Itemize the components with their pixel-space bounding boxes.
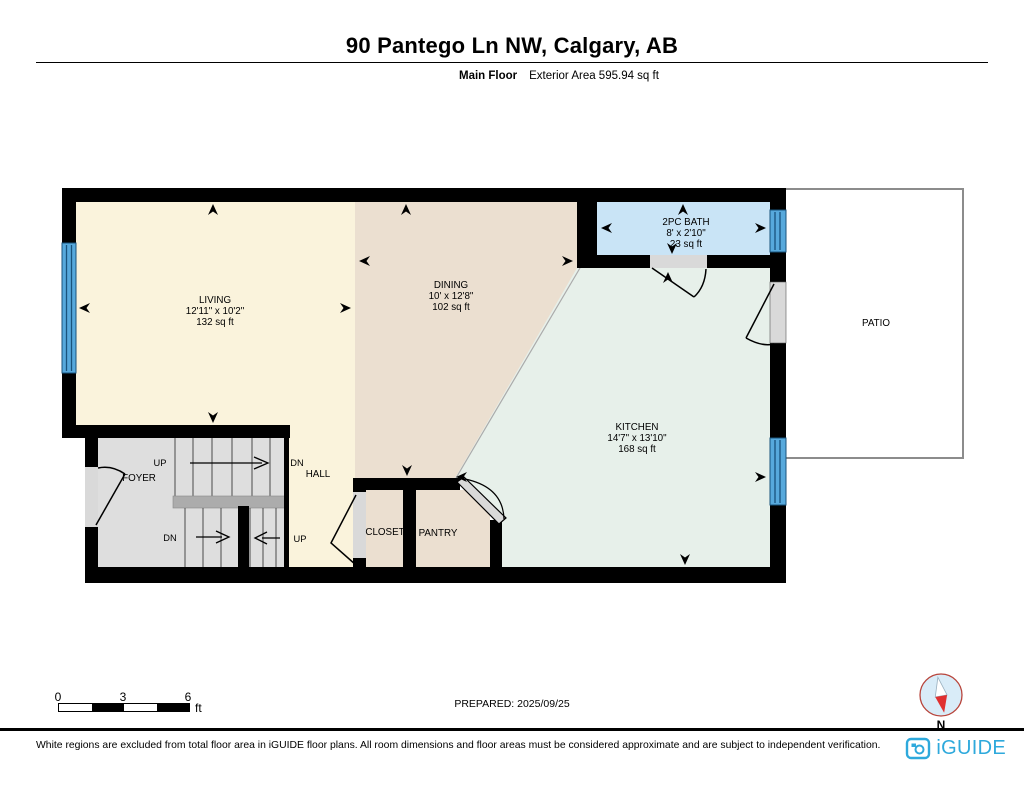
foyer-label: FOYER	[122, 473, 156, 484]
living-window	[62, 243, 76, 373]
kitchen-area: 168 sq ft	[618, 444, 656, 455]
iguide-logo: iGUIDE	[905, 736, 1006, 761]
patio-label: PATIO	[862, 318, 890, 329]
stair-dn-label-hall: DN	[290, 458, 303, 468]
stair-landing	[173, 496, 288, 508]
pantry-label: PANTRY	[419, 528, 458, 539]
footer: White regions are excluded from total fl…	[0, 728, 1024, 761]
compass-icon: N	[915, 670, 967, 734]
hall-label: HALL	[306, 469, 331, 480]
kitchen-window	[770, 438, 786, 505]
stair-dn-label-lower: DN	[163, 533, 176, 543]
footer-disclaimer: White regions are excluded from total fl…	[36, 736, 880, 751]
living-area: 132 sq ft	[196, 317, 234, 328]
iguide-logo-text: iGUIDE	[936, 737, 1006, 760]
living-label: LIVING	[199, 295, 231, 306]
dining-dims: 10' x 12'8"	[429, 291, 474, 302]
living-dims: 12'11" x 10'2"	[186, 306, 245, 317]
prepared-date: PREPARED: 2025/09/25	[0, 698, 1024, 710]
floor-plan-drawing: LIVING 12'11" x 10'2" 132 sq ft DINING 1…	[0, 0, 1024, 791]
dining-area: 102 sq ft	[432, 302, 470, 313]
stair-up-label-lower: UP	[294, 534, 307, 544]
stair-up-label-upper: UP	[154, 458, 167, 468]
iguide-logo-icon	[905, 736, 932, 761]
closet-label: CLOSET	[365, 527, 404, 538]
kitchen-label: KITCHEN	[615, 422, 658, 433]
floor-plan-page: 90 Pantego Ln NW, Calgary, AB Main Floor…	[0, 0, 1024, 791]
dining-label: DINING	[434, 280, 468, 291]
bath-label: 2PC BATH	[662, 217, 709, 228]
kitchen-dims: 14'7" x 13'10"	[607, 433, 667, 444]
bath-dims: 8' x 2'10"	[666, 228, 706, 239]
bath-area: 23 sq ft	[670, 239, 702, 250]
bath-window	[770, 210, 786, 252]
